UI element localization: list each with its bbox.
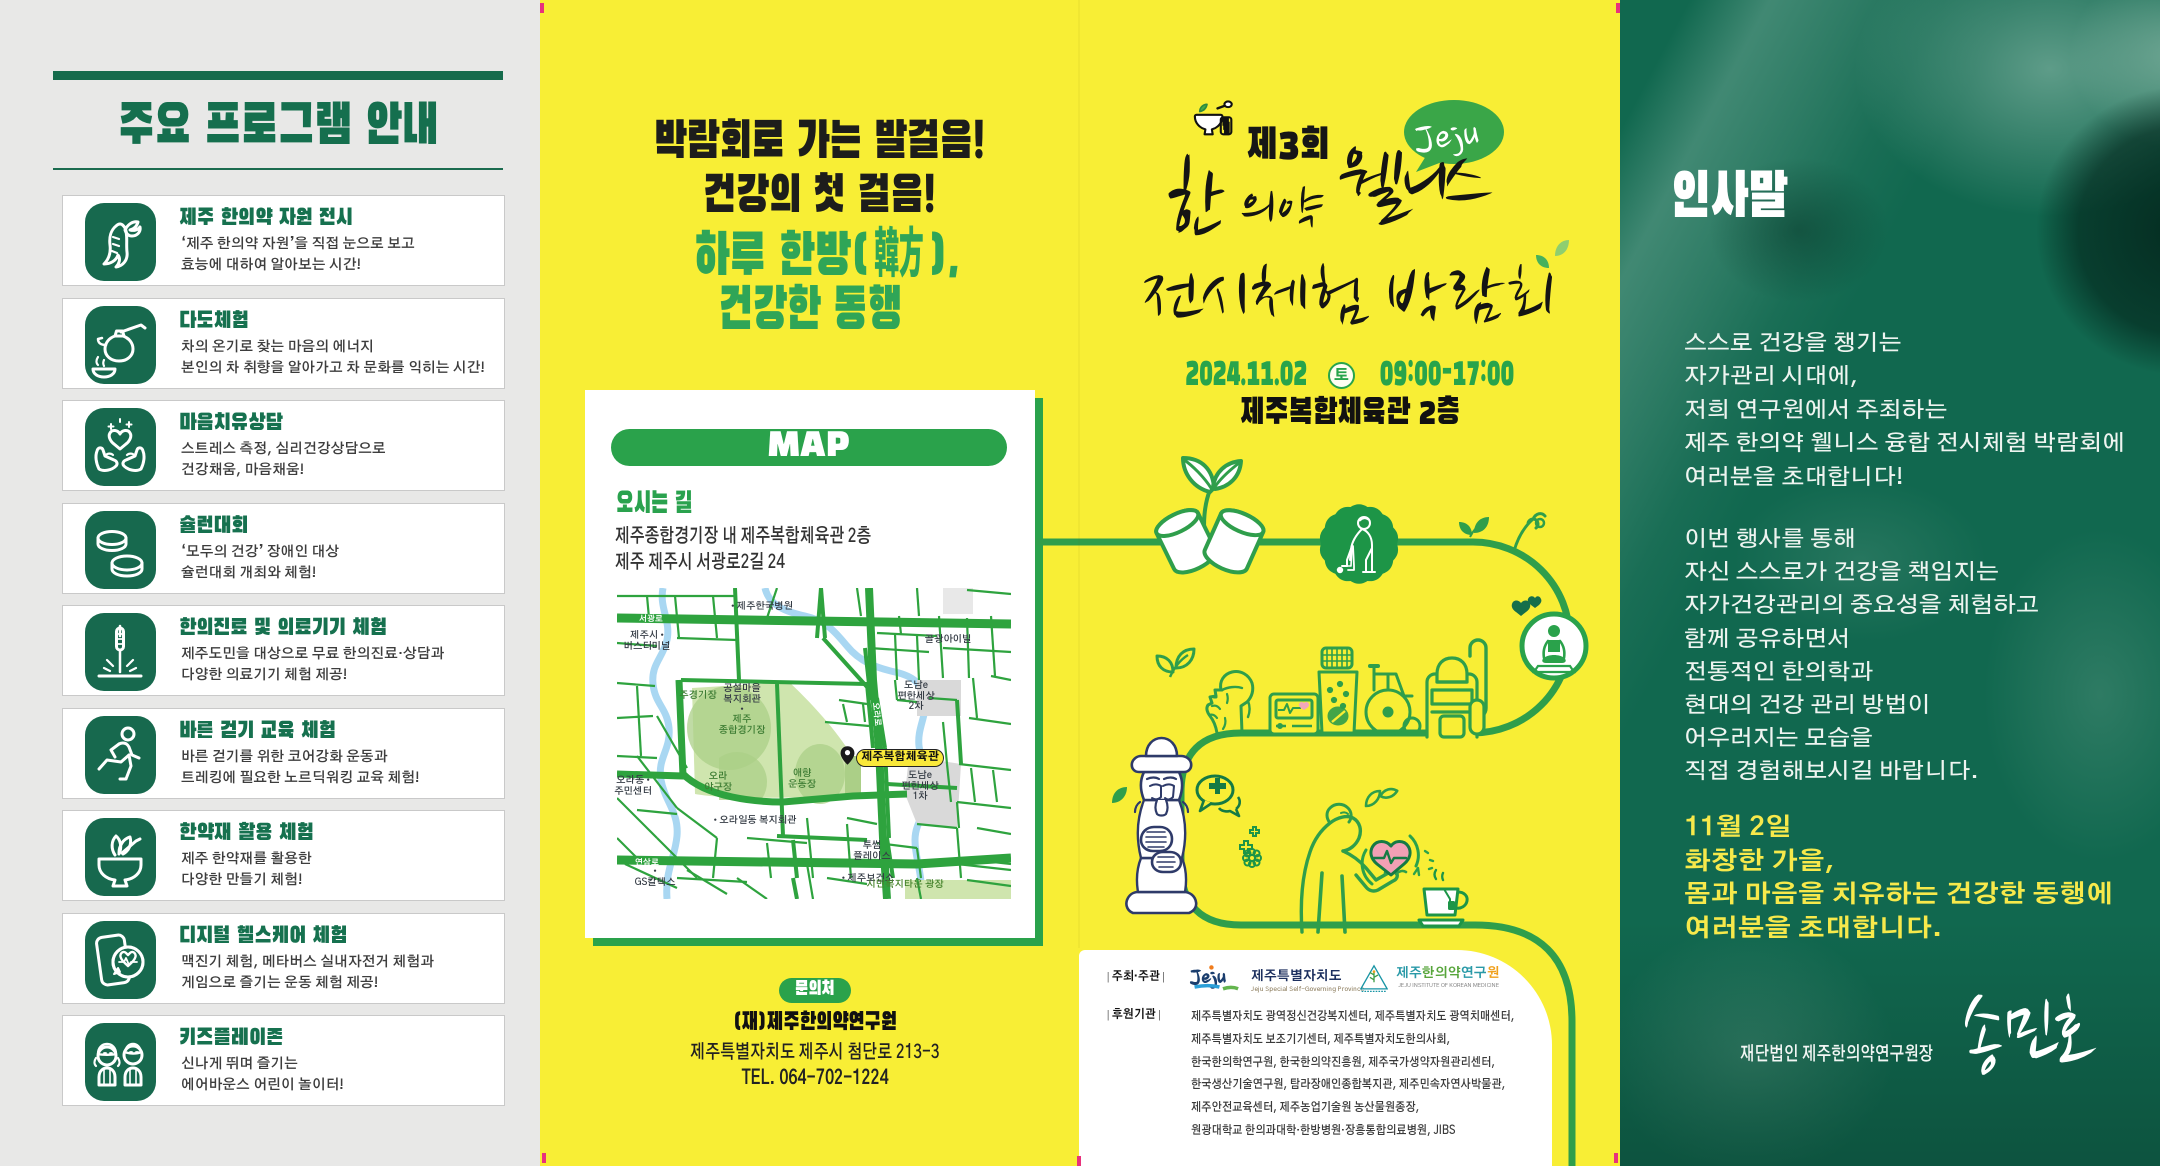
svg-text:Jeju: Jeju: [1189, 964, 1227, 994]
svg-text:서광로: 서광로: [638, 614, 663, 623]
